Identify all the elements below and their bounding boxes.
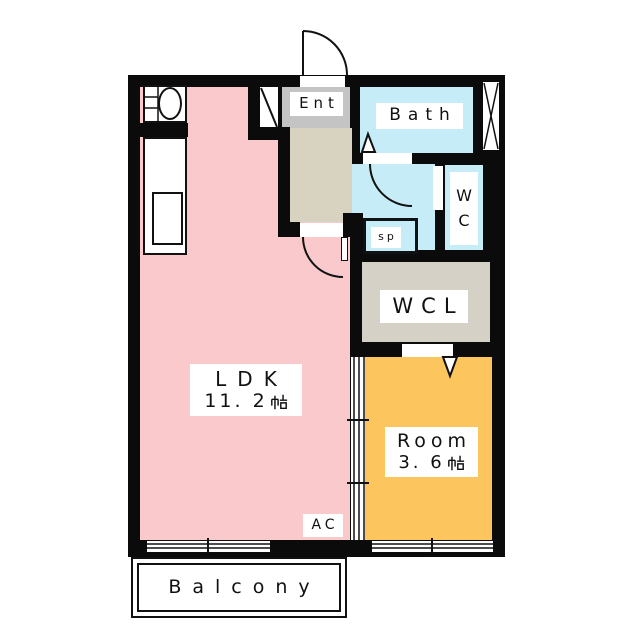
wall-segment xyxy=(278,87,282,128)
ldk-area-number: 11. 2 xyxy=(204,391,267,413)
hall-door-leaf xyxy=(341,237,348,261)
ldk-area: 11. 2 xyxy=(204,391,287,413)
bath-label: Bath xyxy=(376,103,463,129)
wall-segment xyxy=(343,213,363,237)
wall-segment xyxy=(140,123,188,137)
entrance-door-threshold xyxy=(300,76,345,87)
wcl-door-opening xyxy=(402,344,453,357)
room-hall xyxy=(290,128,352,222)
wc-label: W C xyxy=(450,172,478,245)
bedroom-window xyxy=(372,541,493,552)
wall-segment xyxy=(278,222,300,237)
pipe-shaft xyxy=(483,82,499,150)
hall-ldk-door-opening xyxy=(300,223,343,237)
wc-label-c: C xyxy=(458,212,469,230)
balcony-label: Balcony xyxy=(150,572,328,604)
ac-label: AC xyxy=(303,514,343,537)
wall-segment xyxy=(352,237,363,262)
bath-door-opening xyxy=(363,153,412,164)
kitchen-counter-appliance xyxy=(152,192,183,245)
ldk-bedroom-sliding-door xyxy=(351,357,365,540)
bedroom-area-number: 3. 6 xyxy=(398,453,444,474)
kitchen-sink-oval xyxy=(158,87,182,120)
jo-kanji-unit-icon xyxy=(270,393,288,411)
wc-label-w: W xyxy=(456,187,472,205)
wcl-label: WCL xyxy=(380,290,468,323)
entrance-label: Ent xyxy=(290,92,343,116)
wall-segment xyxy=(278,128,290,237)
entrance-door-swing-icon xyxy=(303,31,347,75)
ldk-label: LDK 11. 2 xyxy=(190,364,302,416)
ldk-window xyxy=(147,541,270,552)
bedroom-label: Room 3. 6 xyxy=(385,427,478,477)
shoe-closet xyxy=(260,87,278,128)
jo-kanji-unit-icon xyxy=(447,454,465,472)
ldk-name: LDK xyxy=(204,368,288,391)
washer-space-label: sp xyxy=(371,227,401,248)
wc-door-opening xyxy=(433,166,443,210)
bedroom-name: Room xyxy=(392,431,471,453)
floorplan-canvas: Ent Bath W C sp WCL LDK 11. 2 Room 3. 6 … xyxy=(0,0,640,640)
bedroom-area: 3. 6 xyxy=(398,453,464,474)
